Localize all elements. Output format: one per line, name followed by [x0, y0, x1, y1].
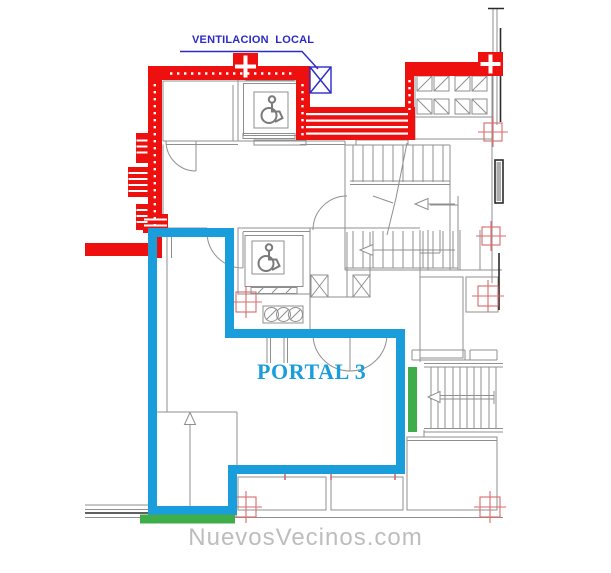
- ventilation-label: VENTILACION LOCAL: [192, 34, 314, 46]
- column-cross-icon: [478, 52, 503, 76]
- gray-linework: [85, 8, 504, 518]
- watermark: NuevosVecinos.com: [0, 524, 611, 552]
- floor-plan: VENTILACION LOCAL PORTAL 3 NuevosVecinos…: [0, 0, 611, 573]
- duct-hatch-boxes: [417, 76, 487, 114]
- stair-arrow-icon: [428, 392, 440, 403]
- stairs-middle: [345, 231, 458, 268]
- vent-circles: [263, 306, 303, 323]
- elevator-1: [238, 73, 302, 141]
- green-accents: [140, 367, 417, 524]
- wheelchair-icon: [262, 96, 283, 123]
- plan-drawing: [0, 0, 611, 573]
- grid-markers: [230, 117, 508, 523]
- stairs-lower: [424, 364, 503, 433]
- column-cross-icon: [233, 53, 258, 80]
- x-shaft-boxes: [311, 275, 370, 297]
- stair-arrow-icon: [360, 245, 373, 256]
- stair-arrow-icon: [415, 199, 428, 210]
- portal-label: PORTAL 3: [257, 359, 366, 385]
- red-walls: [85, 52, 503, 258]
- wheelchair-icon: [259, 244, 280, 271]
- grid-marker-icon: [474, 491, 506, 523]
- grid-marker-icon: [478, 117, 508, 147]
- ramp-arrow-icon: [185, 413, 196, 425]
- grid-marker-icon: [230, 286, 262, 318]
